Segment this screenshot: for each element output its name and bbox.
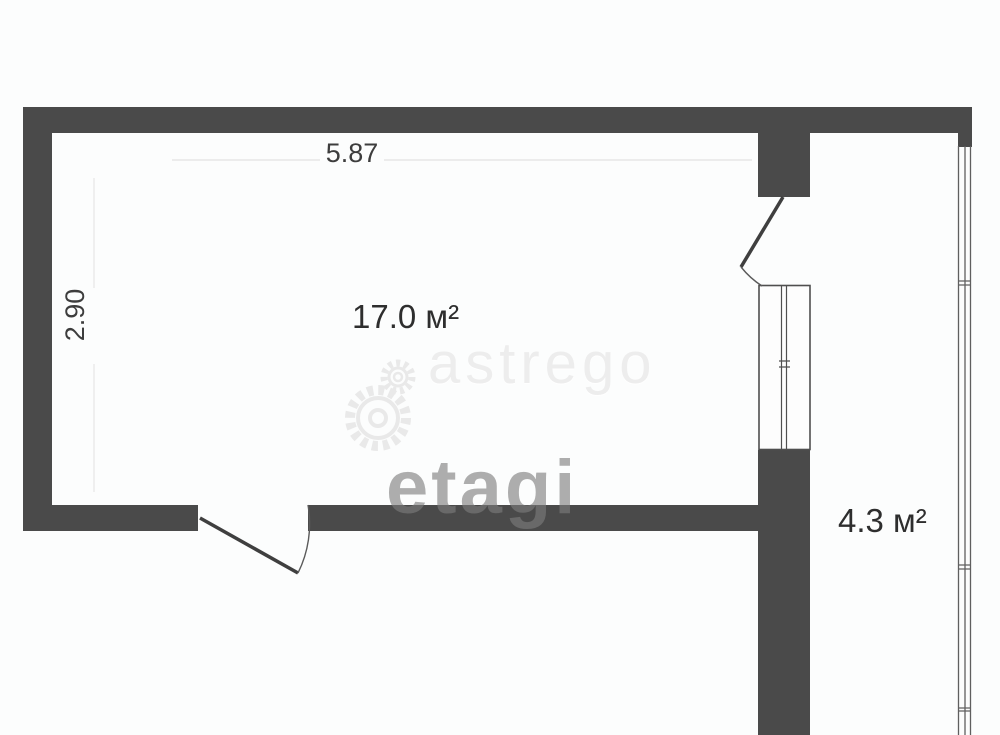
plan-linework xyxy=(0,0,1000,735)
dimension-left-height: 2.90 xyxy=(57,280,93,350)
balcony-glazing xyxy=(958,146,971,735)
dimension-top-width: 5.87 xyxy=(322,138,382,169)
balcony-window-frame xyxy=(759,286,810,450)
watermark-etagi: etagi xyxy=(386,444,578,531)
balcony-door-swing xyxy=(741,197,783,286)
room-area-balcony: 4.3 м² xyxy=(838,502,927,540)
floor-plan-canvas: 5.87 2.90 17.0 м² 4.3 м² astrego etagi xyxy=(0,0,1000,735)
room-area-main: 17.0 м² xyxy=(352,298,459,336)
interior-door-swing xyxy=(200,505,310,573)
